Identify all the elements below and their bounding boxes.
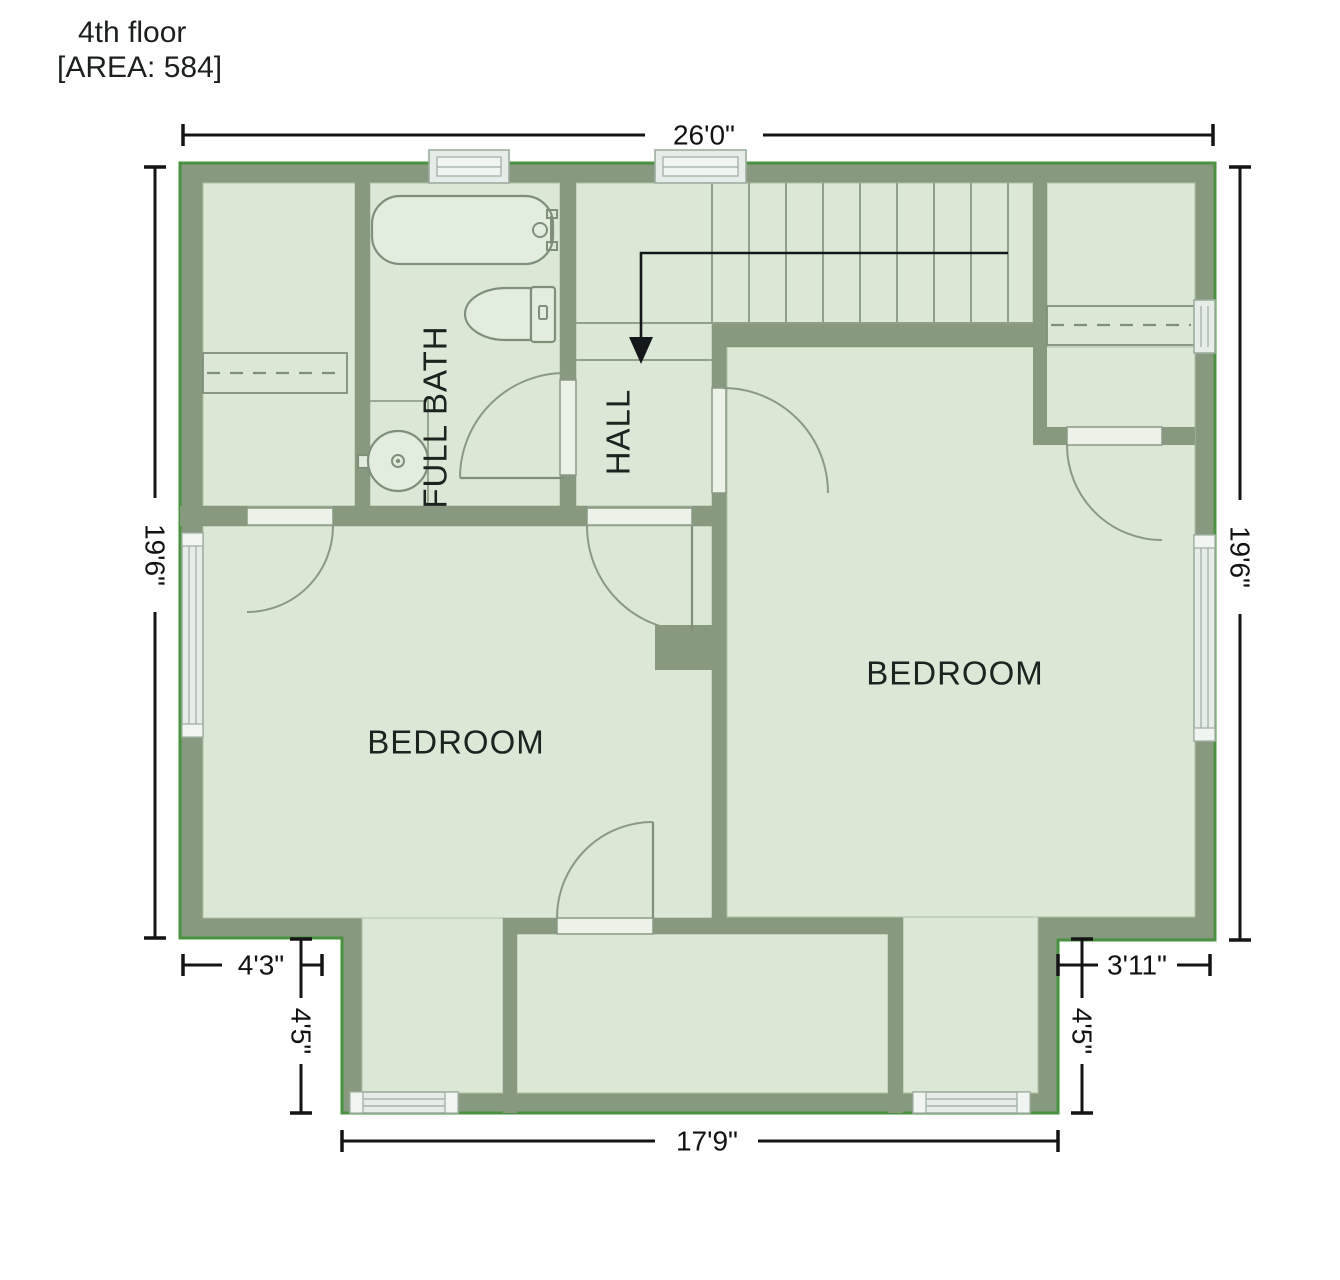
bedroom-right-extension-floor: [903, 917, 1038, 1093]
wall-bedroom-divider: [712, 526, 726, 918]
wall-bath-hall-upper: [560, 183, 576, 380]
room-label-bedroom-left: BEDROOM: [367, 724, 545, 761]
floor-plan-page: 4th floor [AREA: 584]: [0, 0, 1340, 1280]
dim-label-bottom-left-width: 4'3": [238, 950, 284, 981]
dim-label-bottom-right-width: 3'11": [1107, 950, 1167, 981]
wall-stairs-closet: [1033, 183, 1047, 323]
wall-closet-right-side: [1033, 347, 1047, 427]
wall-bedroom-left-top-b: [333, 506, 587, 526]
wall-center-room-right: [888, 918, 903, 1113]
dim-label-left: 19'6": [140, 524, 171, 586]
dim-left: 19'6": [140, 167, 171, 938]
dim-label-bottom: 17'9": [676, 1126, 738, 1157]
wall-center-room-top-a: [503, 918, 557, 934]
dim-top: 26'0": [183, 120, 1213, 151]
bathtub: [372, 196, 557, 264]
area-label: [AREA: 584]: [57, 51, 222, 84]
wall-under-stairs: [712, 323, 1047, 347]
wall-hall-bedroom-lower: [712, 493, 726, 506]
room-label-bedroom-right: BEDROOM: [866, 655, 1044, 692]
dormer-window-center: [655, 150, 746, 183]
dim-label-bottom-right-depth: 4'5": [1067, 1008, 1098, 1054]
closet-top-left-floor: [203, 183, 355, 506]
dim-right: 19'6": [1225, 167, 1256, 940]
wall-center-room-left: [503, 918, 517, 1113]
window-bottom-left: [350, 1092, 458, 1113]
wall-closet-right-bottom-b: [1162, 427, 1195, 445]
bottom-center-room-floor: [517, 934, 888, 1093]
window-left-wall: [182, 533, 203, 737]
dim-label-right: 19'6": [1225, 526, 1256, 588]
floor-plan-canvas: 4th floor [AREA: 584]: [0, 0, 1340, 1280]
bedroom-left-extension-floor: [362, 918, 503, 1093]
wall-bedroom-left-top-c: [692, 506, 726, 526]
window-right-wall: [1194, 535, 1215, 741]
bedroom-left-floor: [203, 526, 712, 918]
dim-label-bottom-left-depth: 4'5": [286, 1008, 317, 1054]
wall-center-room-top-b: [653, 918, 903, 934]
wall-closet-right-bottom-a: [1033, 427, 1067, 445]
window-right-wall-small: [1194, 300, 1215, 353]
dormer-window-left: [429, 150, 509, 183]
dim-bottom: 17'9": [342, 1126, 1058, 1157]
wall-hall-bedroom-upper: [712, 347, 726, 388]
room-label-bath: FULL BATH: [417, 325, 454, 508]
window-bottom-right: [913, 1092, 1030, 1113]
wall-bath-hall-lower: [560, 475, 576, 506]
wall-bedroom-left-top-a: [180, 506, 247, 526]
dim-label-top: 26'0": [673, 120, 735, 151]
room-label-hall: HALL: [600, 389, 637, 476]
floor-title: 4th floor: [78, 16, 186, 49]
toilet: [465, 287, 555, 342]
